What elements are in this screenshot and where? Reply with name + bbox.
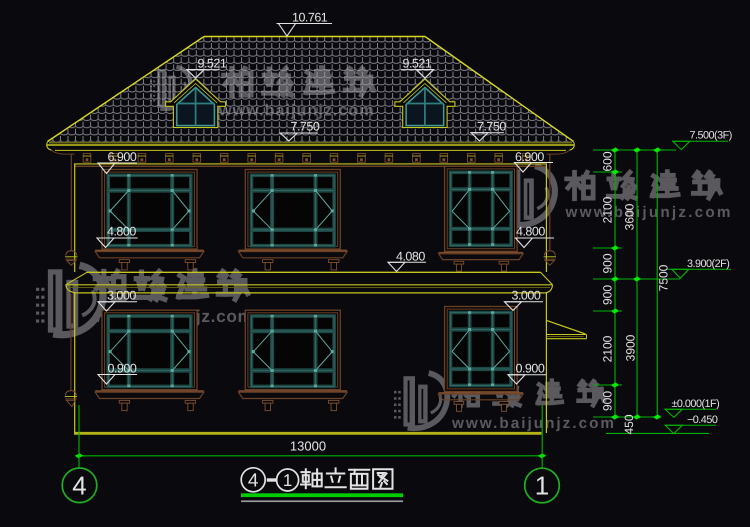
svg-text:3600: 3600 [623, 203, 637, 230]
svg-text:3.000: 3.000 [512, 289, 541, 303]
svg-text:3.900(2F): 3.900(2F) [687, 258, 729, 270]
svg-text:900: 900 [601, 285, 615, 305]
svg-text:900: 900 [601, 391, 615, 411]
svg-text:1: 1 [535, 471, 549, 501]
svg-text:2100: 2100 [601, 335, 615, 362]
svg-text:3.000: 3.000 [107, 289, 136, 303]
svg-text:7.750: 7.750 [477, 120, 506, 134]
svg-text:900: 900 [601, 253, 615, 273]
svg-text:7.500(3F): 7.500(3F) [690, 130, 732, 142]
svg-text:6.900: 6.900 [515, 150, 544, 164]
svg-text:−0.450: −0.450 [687, 414, 718, 426]
svg-text:www.baijunjz.com: www.baijunjz.com [451, 415, 616, 432]
svg-text:6.900: 6.900 [108, 150, 137, 164]
svg-text:0.900: 0.900 [108, 362, 137, 376]
svg-text:4.080: 4.080 [396, 250, 425, 264]
svg-text:13000: 13000 [290, 439, 326, 454]
svg-text:3900: 3900 [624, 334, 638, 361]
svg-text:450: 450 [622, 414, 636, 434]
svg-text:www.baijunjz.com: www.baijunjz.com [565, 204, 733, 221]
svg-text:7.750: 7.750 [291, 120, 320, 134]
svg-text:1: 1 [283, 471, 292, 490]
svg-text:2100: 2100 [601, 196, 615, 223]
svg-text:9.521: 9.521 [403, 57, 432, 71]
svg-text:10.761: 10.761 [292, 11, 328, 25]
svg-text:±0.000(1F): ±0.000(1F) [672, 398, 720, 410]
svg-text:9.521: 9.521 [198, 57, 227, 71]
svg-text:4: 4 [248, 471, 259, 492]
svg-text:4.800: 4.800 [107, 225, 136, 239]
svg-text:4: 4 [72, 471, 86, 501]
svg-text:4.800: 4.800 [516, 225, 545, 239]
svg-text:www.baijunjz.com: www.baijunjz.com [218, 102, 375, 120]
svg-text:0.900: 0.900 [516, 362, 545, 376]
svg-text:7500: 7500 [657, 264, 671, 291]
svg-text:600: 600 [601, 151, 615, 171]
